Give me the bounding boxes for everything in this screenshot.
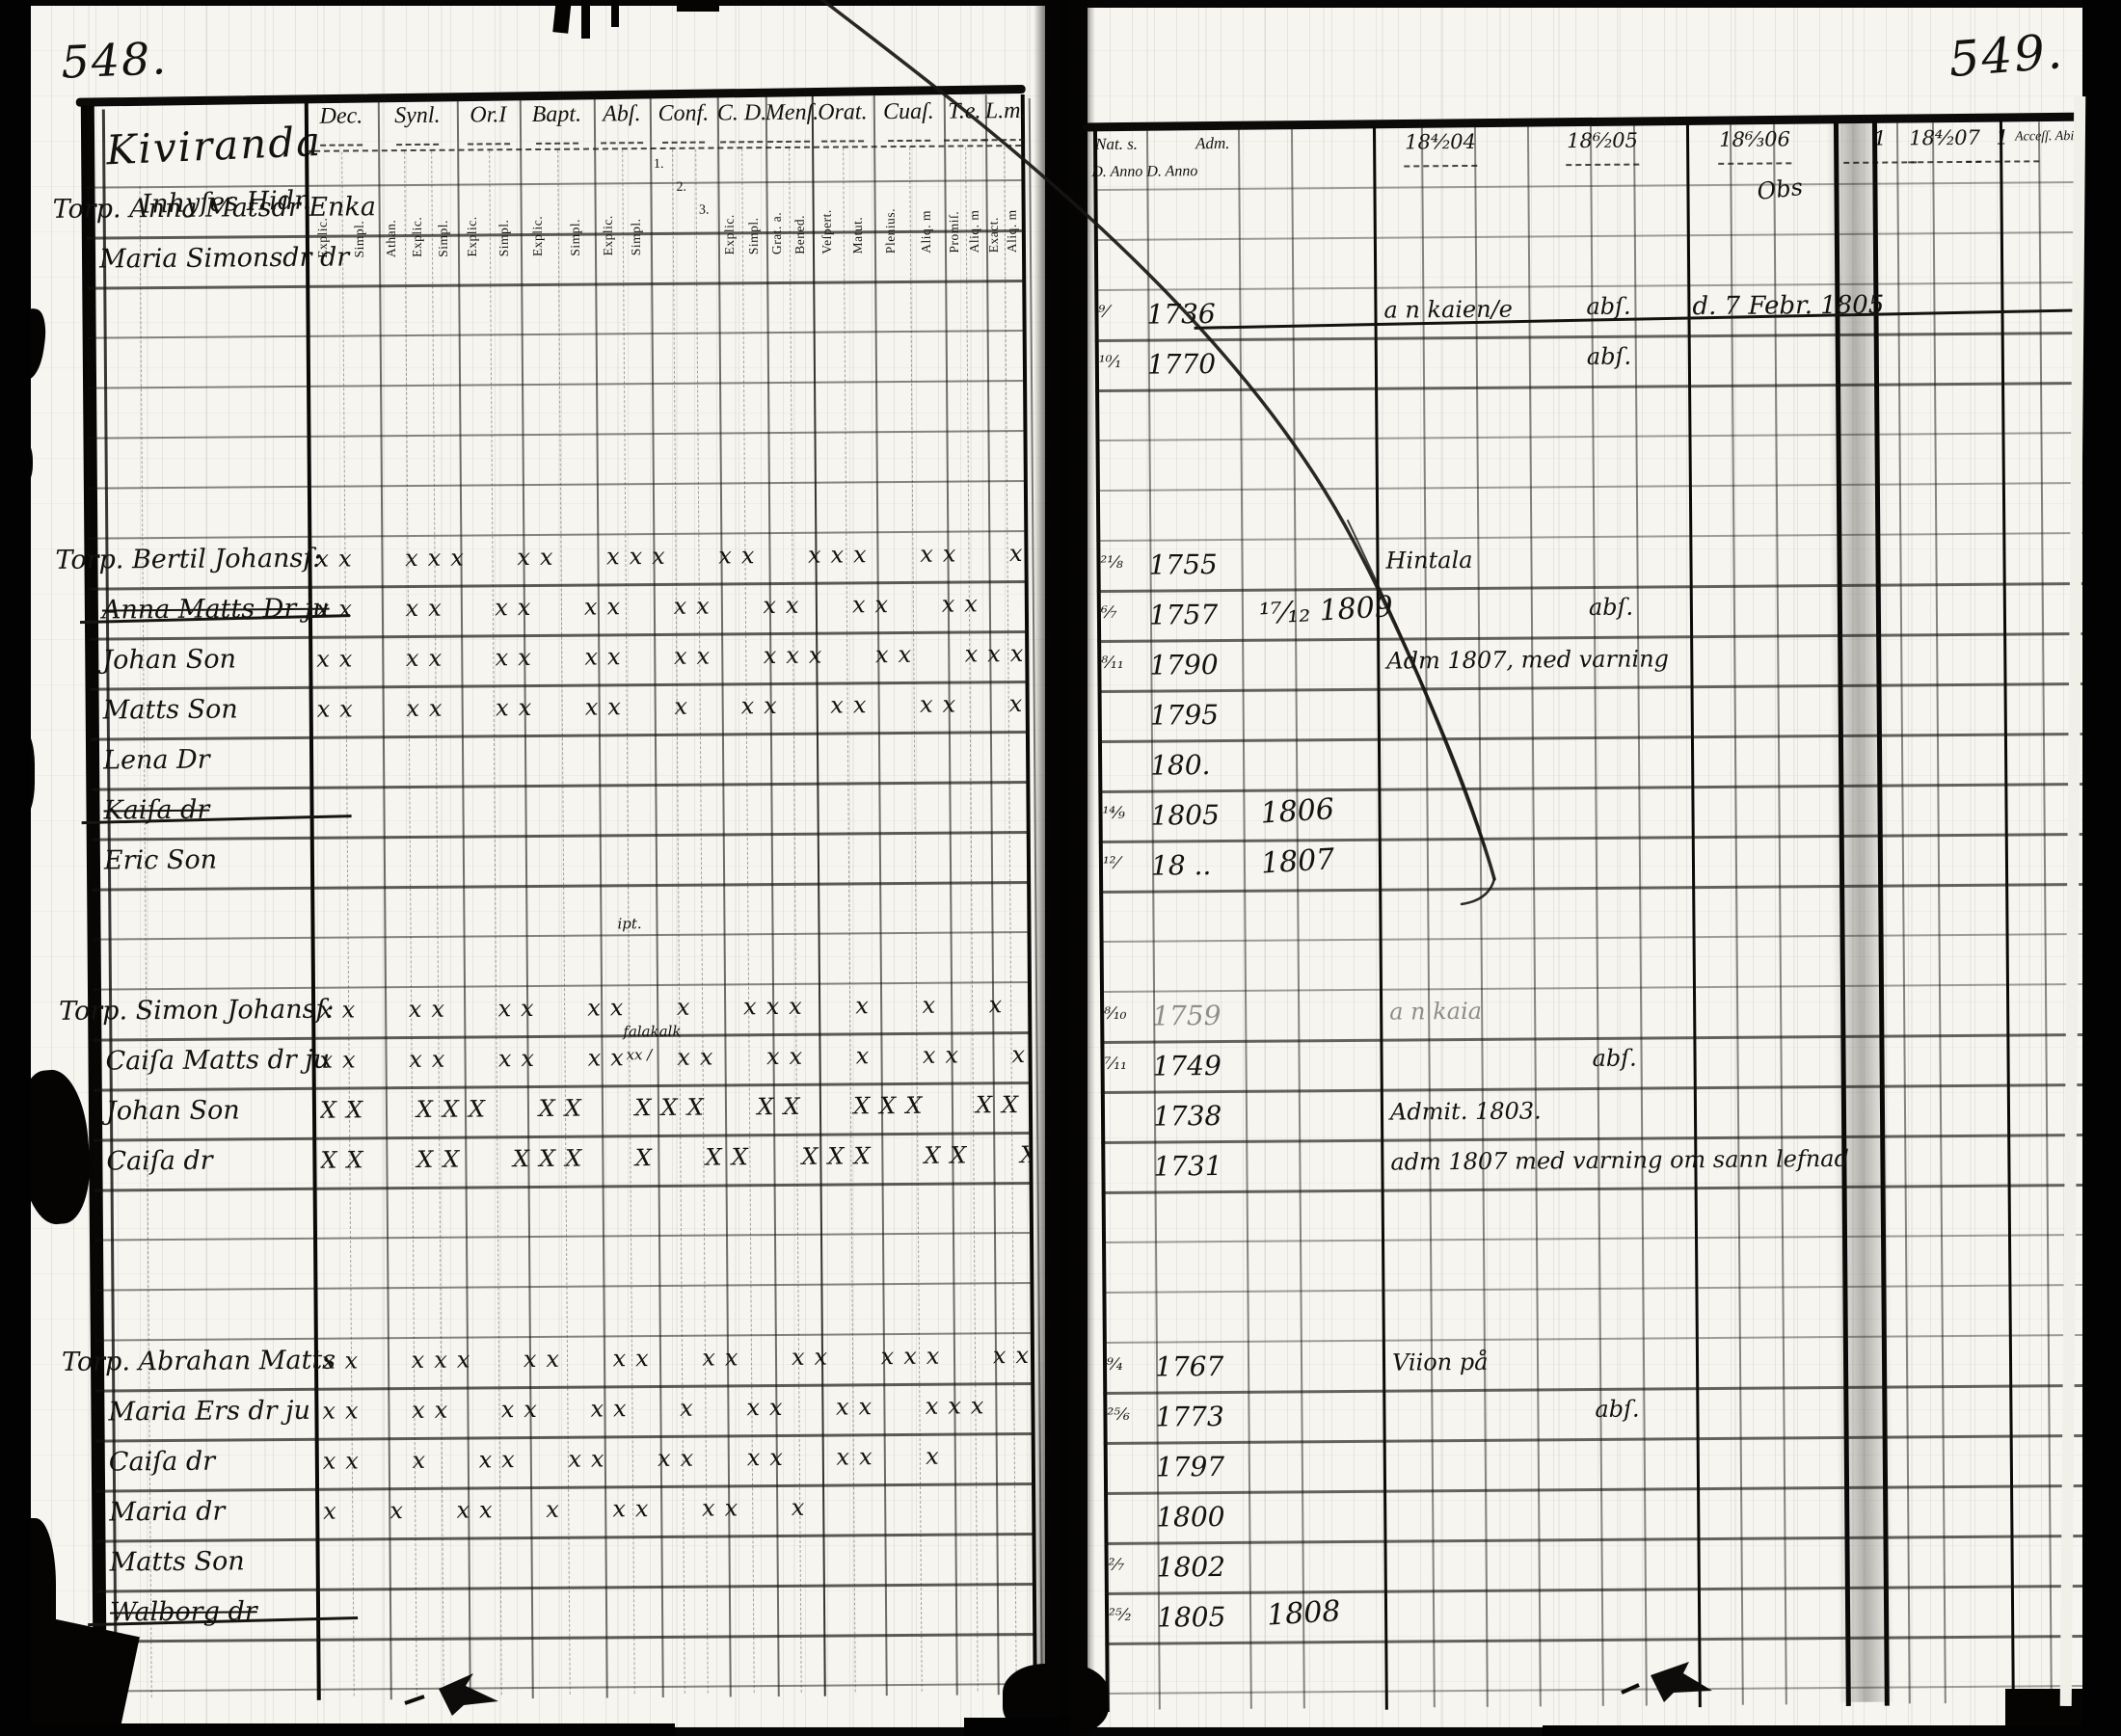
column-header-dash (720, 141, 763, 143)
absence-mark: abſ. (1589, 594, 1633, 621)
row-line (98, 1683, 1035, 1693)
year-entry: 1757 (1149, 599, 1219, 631)
year-entry: 1797 (1156, 1451, 1225, 1483)
column-grid-line (1730, 124, 1743, 1705)
year-entry: 1736 (1146, 298, 1216, 331)
column-header-dash (662, 142, 705, 144)
row-line (93, 931, 1030, 941)
column-subheader: Aliq. m (966, 148, 984, 253)
day-entry: ⁹⁄₄ (1107, 1355, 1123, 1375)
row-line (90, 580, 1027, 591)
name-entry: Lena Dr (103, 745, 210, 776)
row-line (97, 1633, 1034, 1643)
right-page: 549. Nat. s.Adm.D. Anno D. Anno18⁴⁄₂0418… (1087, 8, 2092, 1727)
column-header: Bapt. (520, 102, 594, 142)
column-grid-line (1474, 126, 1488, 1707)
marks-entry: xx xx xx xx x xx xx xx xx (317, 690, 1027, 723)
row-line (88, 380, 1025, 389)
row-line (94, 1082, 1031, 1092)
day-entry: ¹²⁄ (1103, 854, 1119, 873)
column-header-dash (888, 140, 930, 142)
year-entry: 1759 (1152, 1000, 1222, 1032)
marks-entry: xx xxx xx xxx xx xxx xx xxx x xx x x x (315, 540, 1025, 573)
left-page-number: 548. (60, 32, 169, 89)
row-line (89, 480, 1026, 490)
column-subheader: Explic. (464, 152, 482, 256)
absence-mark: abſ. (1586, 293, 1630, 320)
row-line (92, 881, 1029, 892)
column-subheader: Bened. (792, 150, 810, 254)
row-line (96, 1482, 1034, 1493)
column-header-dash (536, 143, 578, 145)
marks-entry: xx xx xx xx x xx xx xxx xx xx (322, 1392, 1032, 1425)
name-entry: Maria Simonsdr dr (99, 243, 349, 275)
column-subheader: Athan. (383, 153, 401, 257)
row-line (90, 630, 1027, 641)
column-grid-line (1238, 128, 1251, 1709)
column-grid-line (1896, 122, 1910, 1703)
row-strike-line (1195, 308, 2081, 329)
name-entry: Matts Son (103, 694, 238, 725)
year-entry: 1805 (1150, 799, 1220, 832)
name-entry: Maria Ers dr ju (108, 1396, 310, 1428)
row-line (91, 731, 1028, 741)
admission-entry: 1808 (1266, 1594, 1341, 1633)
note-entry: Admit. 1803. (1390, 1097, 1542, 1125)
note-entry: a n kaia (1389, 998, 1482, 1026)
column-header: Menſ. (765, 100, 812, 139)
header-date: 18⁶⁄₃06 (1702, 127, 1808, 151)
region-title: Kiviranda (105, 118, 323, 174)
row-line (91, 781, 1028, 791)
day-entry: ⁸⁄₁₀ (1104, 1004, 1126, 1024)
marks-entry: xx x xx xx xx xx xx x (323, 1442, 1033, 1475)
year-entry: 1731 (1153, 1150, 1222, 1183)
right-page-content: 549. Nat. s.Adm.D. Anno D. Anno18⁴⁄₂0418… (1081, 4, 2099, 1731)
book-scan-photo: 548. Kiviranda Inhyſes Hidn Dec.Explic.S… (0, 0, 2121, 1736)
row-line (94, 1132, 1031, 1142)
column-grid-line (1291, 127, 1304, 1708)
column-grid-line (1527, 125, 1541, 1706)
day-entry: ⁷⁄₁₁ (1105, 1055, 1127, 1074)
column-subheader: Simpl. (745, 150, 764, 254)
header-date: 18⁶⁄₂05 (1549, 128, 1655, 152)
year-entry: 180. (1150, 749, 1211, 781)
marks-entry: XX XXX XX XXX XX XXX XX XX XX (320, 1091, 1030, 1124)
column-subheader: Veſpert. (819, 150, 837, 254)
day-entry: ²⁄₇ (1109, 1556, 1125, 1575)
absence-mark: abſ. (1592, 1045, 1636, 1072)
ink-mark-top (677, 0, 719, 12)
column-subheader: Simpl. (567, 152, 585, 256)
day-entry: ⁶⁄₇ (1101, 603, 1117, 623)
name-entry: Caiſa Matts dr ju (105, 1045, 330, 1077)
year-entry: 1767 (1155, 1350, 1224, 1383)
year-entry: 18 .. (1151, 849, 1212, 881)
column-header-dash (767, 141, 810, 143)
name-entry: Torp. Simon Johansſ: (59, 995, 335, 1027)
column-header: Conf. (650, 101, 717, 141)
column-header-dash (320, 144, 362, 146)
column-header: T.e. (944, 98, 985, 137)
column-header: Orat. (812, 99, 873, 139)
year-entry: 1802 (1157, 1551, 1226, 1584)
row-line (88, 330, 1025, 339)
name-entry: Torp. Anna Matsdr Enka (53, 192, 376, 225)
photo-edge-left (0, 0, 31, 1736)
row-line (97, 1583, 1034, 1593)
note-entry: adm 1807 med varning om sann lefnad (1390, 1145, 1849, 1176)
absence-mark: abſ. (1587, 343, 1631, 370)
dark-vertical-smudge (1826, 121, 1894, 1702)
left-page-content: 548. Kiviranda Inhyſes Hidn Dec.Explic.S… (22, 2, 1052, 1731)
column-header-dash (396, 144, 439, 146)
header-col-left-1: Nat. s. (1095, 135, 1138, 154)
year-entry: 1770 (1147, 348, 1217, 381)
note-entry: a n kaien/e (1383, 296, 1513, 324)
day-entry: ¹⁴⁄₉ (1102, 804, 1124, 823)
column-grid-line-heavy (1686, 122, 1702, 1707)
column-header-dash (821, 140, 864, 142)
photo-edge-right (2082, 0, 2121, 1736)
row-line (89, 530, 1026, 540)
header-date-dash (1404, 165, 1477, 168)
column-subheader: 3. (699, 203, 710, 219)
column-header: Or.I (457, 102, 520, 142)
column-subheader: Grat. a. (768, 150, 787, 254)
name-entry: Torp. Abrahan Matts (62, 1346, 336, 1377)
column-grid-line-heavy (1373, 125, 1388, 1710)
column-grid-line (1421, 126, 1435, 1707)
column-subheader: Simpl. (436, 153, 454, 257)
name-entry: Caiſa dr (109, 1447, 216, 1478)
year-entry: 1749 (1152, 1050, 1222, 1082)
margin-annotation: xx / (626, 1046, 652, 1063)
left-page: 548. Kiviranda Inhyſes Hidn Dec.Explic.S… (29, 6, 1045, 1727)
column-header-dash (982, 139, 1025, 141)
row-line (95, 1382, 1033, 1393)
column-subheader: Simpl. (496, 152, 514, 256)
day-entry: ²¹⁄₈ (1100, 553, 1122, 573)
column-subheader: 1. (654, 157, 664, 173)
marks-entry: x x xx x xx xx x (323, 1492, 1033, 1525)
column-grid-line-heavy (2000, 120, 2015, 1705)
column-subheader: Promiſ. (946, 149, 964, 254)
header-date: 18⁴⁄₂04 (1387, 130, 1493, 154)
margin-annotation: ipt. (617, 915, 641, 932)
day-entry: ¹⁰⁄₁ (1099, 353, 1121, 372)
absence-mark: abſ. (1595, 1396, 1639, 1423)
day-entry: ²⁵⁄₆ (1107, 1405, 1129, 1425)
column-header-dash (944, 139, 986, 141)
column-subheader: Explic. (721, 150, 739, 254)
right-page-number: 549. (1946, 23, 2065, 88)
row-line (94, 1282, 1032, 1292)
name-entry: Caiſa dr (106, 1146, 213, 1177)
column-subheader: Matut. (849, 149, 868, 254)
header-divider (305, 145, 1021, 152)
year-entry: 1800 (1156, 1501, 1225, 1534)
column-header: C. D. (717, 100, 765, 139)
header-col-left-2: Adm. (1195, 134, 1230, 153)
day-entry: ²⁵⁄₂ (1109, 1606, 1131, 1625)
year-entry: 1755 (1148, 548, 1218, 581)
column-header: Abſ. (594, 101, 650, 140)
column-header-dash (468, 143, 510, 145)
header-sub-left: D. Anno D. Anno (1091, 163, 1197, 181)
row-line (88, 430, 1025, 440)
column-header: L.m. (985, 98, 1021, 137)
marks-entry: xx xx xx xx x xxx x x x x x (319, 991, 1029, 1024)
row-line (95, 1332, 1033, 1342)
row-line (93, 1031, 1030, 1042)
year-entry: 1738 (1153, 1100, 1222, 1133)
year-entry: 1773 (1155, 1401, 1224, 1433)
photo-edge-bottom (0, 1723, 675, 1736)
column-grid-line (2038, 121, 2052, 1702)
marks-entry: xx xx xx xx xx xxx xx xxx xxx (316, 640, 1026, 673)
marks-entry: XX XX XXX X XX XXX XX XX X (320, 1141, 1030, 1174)
day-entry: ⁸⁄₁₁ (1101, 654, 1123, 673)
admission-entry: 1806 (1260, 792, 1335, 831)
admission-entry: 1807 (1260, 842, 1335, 881)
column-grid-line (1633, 125, 1647, 1706)
row-line (91, 681, 1028, 691)
column-subheader: Explic. (600, 151, 618, 255)
year-entry: 1805 (1157, 1601, 1226, 1634)
year-entry: 1790 (1149, 649, 1219, 681)
column-subheader: Explic. (409, 153, 427, 257)
name-entry: Matts Son (110, 1546, 245, 1577)
ink-mark-top (581, 0, 590, 39)
row-line (93, 981, 1030, 991)
row-line (96, 1432, 1034, 1443)
column-header: Synl. (378, 103, 457, 143)
header-col-right: Acceſſ. Abit. (2015, 129, 2081, 146)
column-grid-line (305, 100, 321, 1700)
column-header: Cuaſ. (873, 99, 944, 139)
header-date-dash (1566, 164, 1639, 167)
marks-entry: xx xx xx xx xx xx x xx xx xx x (319, 1041, 1029, 1074)
column-header-dash (601, 142, 643, 144)
year-entry: 1795 (1150, 699, 1220, 732)
note-entry: Viion på (1392, 1349, 1489, 1376)
ink-mark-top (611, 0, 619, 27)
margin-annotation: falakalk (623, 1023, 681, 1040)
row-line (96, 1533, 1034, 1543)
column-subheader: Aliq. m (918, 149, 936, 254)
column-subheader: Plenius. (882, 149, 900, 254)
column-grid-line (1773, 123, 1786, 1704)
row-line (92, 831, 1029, 841)
name-entry: Eric Son (104, 845, 217, 876)
name-entry: Johan Son (106, 1095, 240, 1126)
row-line (94, 1182, 1032, 1192)
name-entry: Torp. Bertil Johansſ: (55, 544, 321, 575)
admission-entry: ¹⁷⁄₁₂ 1809 (1258, 590, 1394, 631)
row-line (94, 1232, 1032, 1242)
column-header: Dec. (305, 103, 378, 143)
note-entry: Adm 1807, med varning (1386, 645, 1669, 674)
header-note-obs: Obs (1756, 174, 1804, 205)
row-line (87, 280, 1024, 290)
name-entry: Maria dr (109, 1497, 225, 1528)
book-gutter (1034, 0, 1095, 1736)
column-subheader: Simpl. (628, 151, 646, 255)
note-entry: Hintala (1385, 547, 1472, 574)
marks-entry: xx xxx xx xx xx xx xxx xx xx x x (322, 1342, 1032, 1375)
photo-edge-bottom-right (1543, 1725, 2121, 1736)
column-subheader: Exact. (985, 148, 1004, 253)
column-subheader: Aliq. m (1004, 148, 1022, 253)
marks-entry: xx xx xx xx xx xx xx xx x x x (316, 590, 1026, 623)
name-entry: Johan Son (102, 644, 236, 675)
column-subheader: Explic. (529, 152, 548, 256)
column-grid-line (1932, 122, 1946, 1703)
day-entry: ⁹⁄ (1098, 303, 1108, 322)
binding-tab-bottom (964, 1718, 1070, 1736)
